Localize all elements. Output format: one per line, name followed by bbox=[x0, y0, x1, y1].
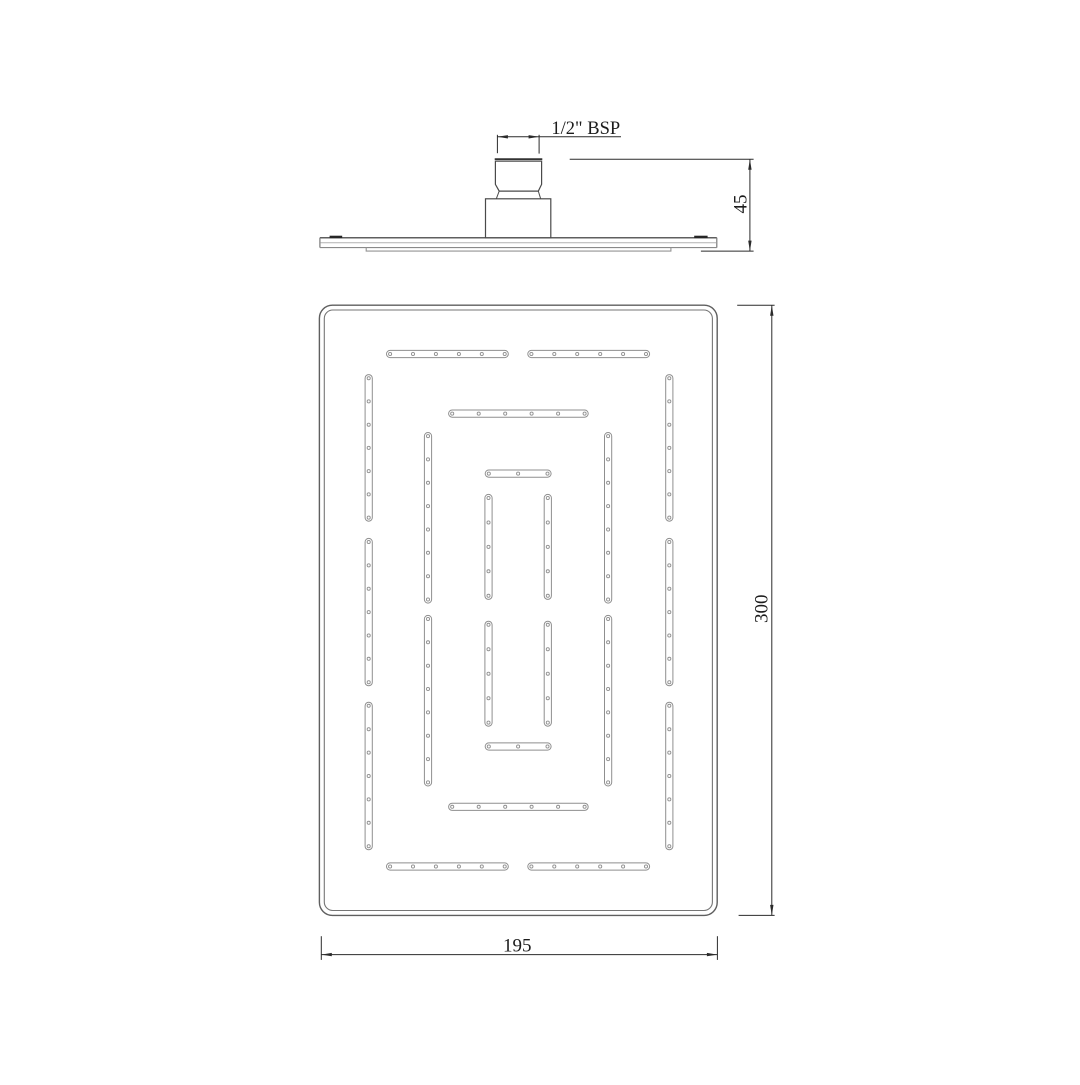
svg-text:300: 300 bbox=[751, 594, 772, 623]
svg-text:195: 195 bbox=[503, 936, 532, 957]
svg-text:45: 45 bbox=[730, 195, 751, 214]
svg-text:1/2" BSP: 1/2" BSP bbox=[551, 119, 620, 139]
